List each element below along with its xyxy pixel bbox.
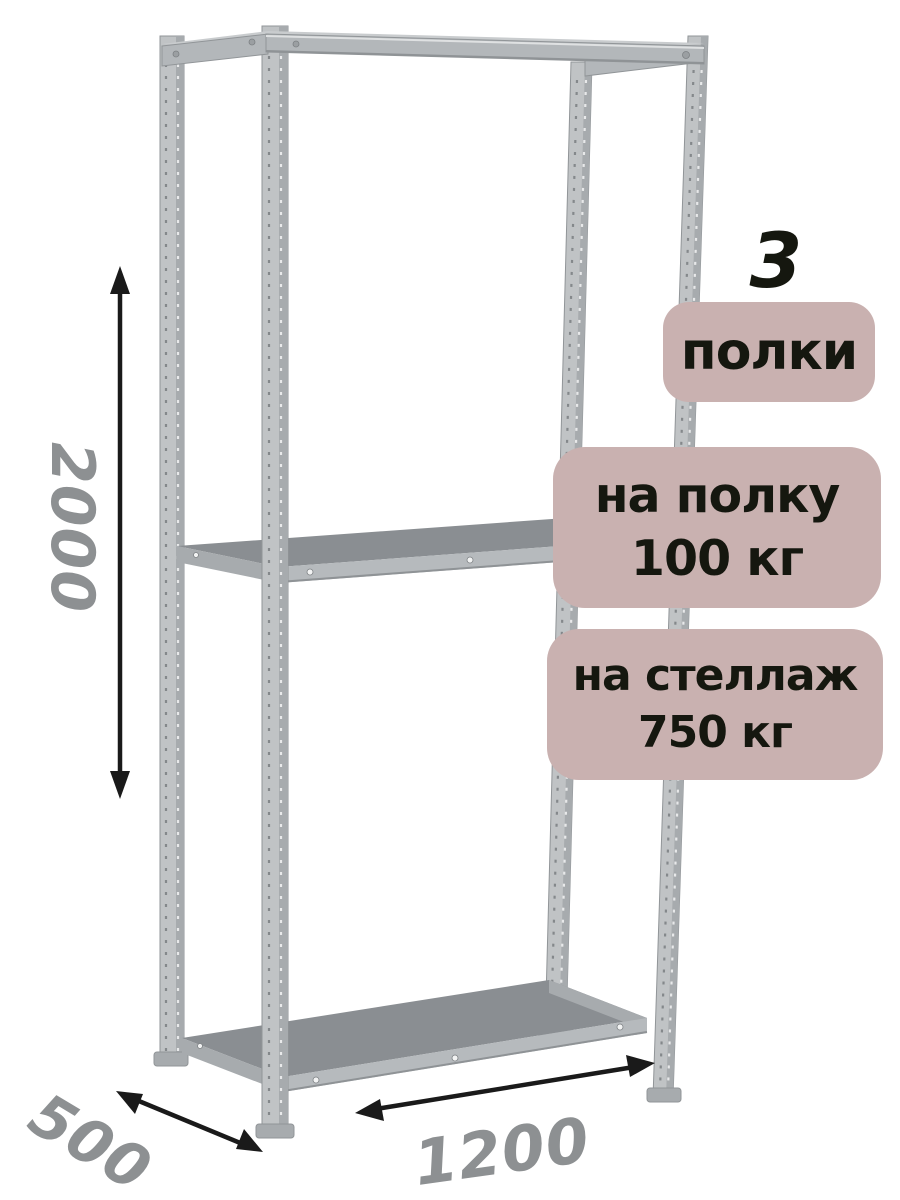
- per-rack-load-line1: на стеллаж: [573, 648, 858, 704]
- per-shelf-load-line2: 100 кг: [631, 528, 803, 591]
- per-rack-load-line2: 750 кг: [638, 705, 792, 761]
- per-shelf-load-badge: на полку 100 кг: [553, 447, 881, 608]
- product-dimension-diagram: 3 полки на полку 100 кг на стеллаж 750 к…: [0, 0, 900, 1200]
- rack-shelf-top: [162, 31, 704, 76]
- shelf-count-number: 3: [728, 218, 824, 304]
- per-shelf-load-line1: на полку: [595, 465, 840, 528]
- post-foot: [647, 1088, 681, 1102]
- height-dimension-arrow: [110, 266, 130, 799]
- post-foot: [256, 1124, 294, 1138]
- height-dimension-label: 2000: [37, 442, 107, 612]
- shelf-count-label: полки: [681, 319, 857, 386]
- shelf-count-badge: полки: [663, 302, 875, 402]
- post-foot: [154, 1052, 188, 1066]
- per-rack-load-badge: на стеллаж 750 кг: [547, 629, 883, 780]
- rack-post-front-left: [256, 26, 294, 1138]
